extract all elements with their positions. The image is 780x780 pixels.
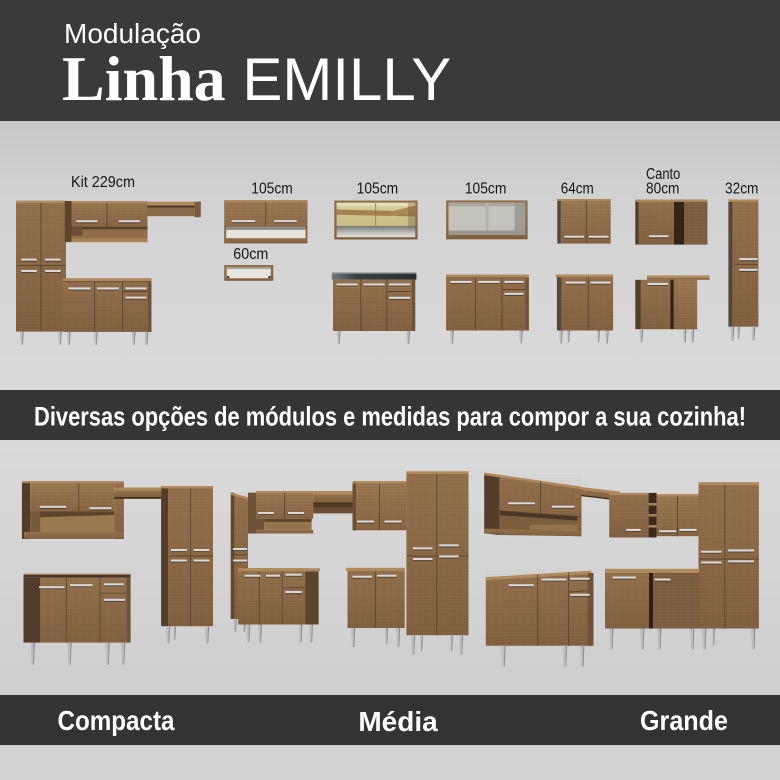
svg-text:Média: Média: [358, 706, 438, 737]
svg-text:Linha EMILLY: Linha EMILLY: [62, 43, 451, 114]
svg-text:Kit 229cm: Kit 229cm: [71, 174, 135, 191]
svg-text:Grande: Grande: [640, 705, 728, 736]
svg-text:80cm: 80cm: [646, 181, 679, 198]
svg-text:Compacta: Compacta: [58, 705, 175, 736]
svg-text:60cm: 60cm: [233, 246, 268, 263]
svg-text:105cm: 105cm: [357, 181, 399, 198]
svg-text:105cm: 105cm: [465, 181, 507, 198]
svg-text:64cm: 64cm: [561, 181, 594, 198]
svg-text:105cm: 105cm: [251, 181, 293, 198]
svg-text:32cm: 32cm: [725, 181, 758, 198]
svg-text:Diversas opções de módulos e m: Diversas opções de módulos e medidas par…: [34, 402, 746, 432]
